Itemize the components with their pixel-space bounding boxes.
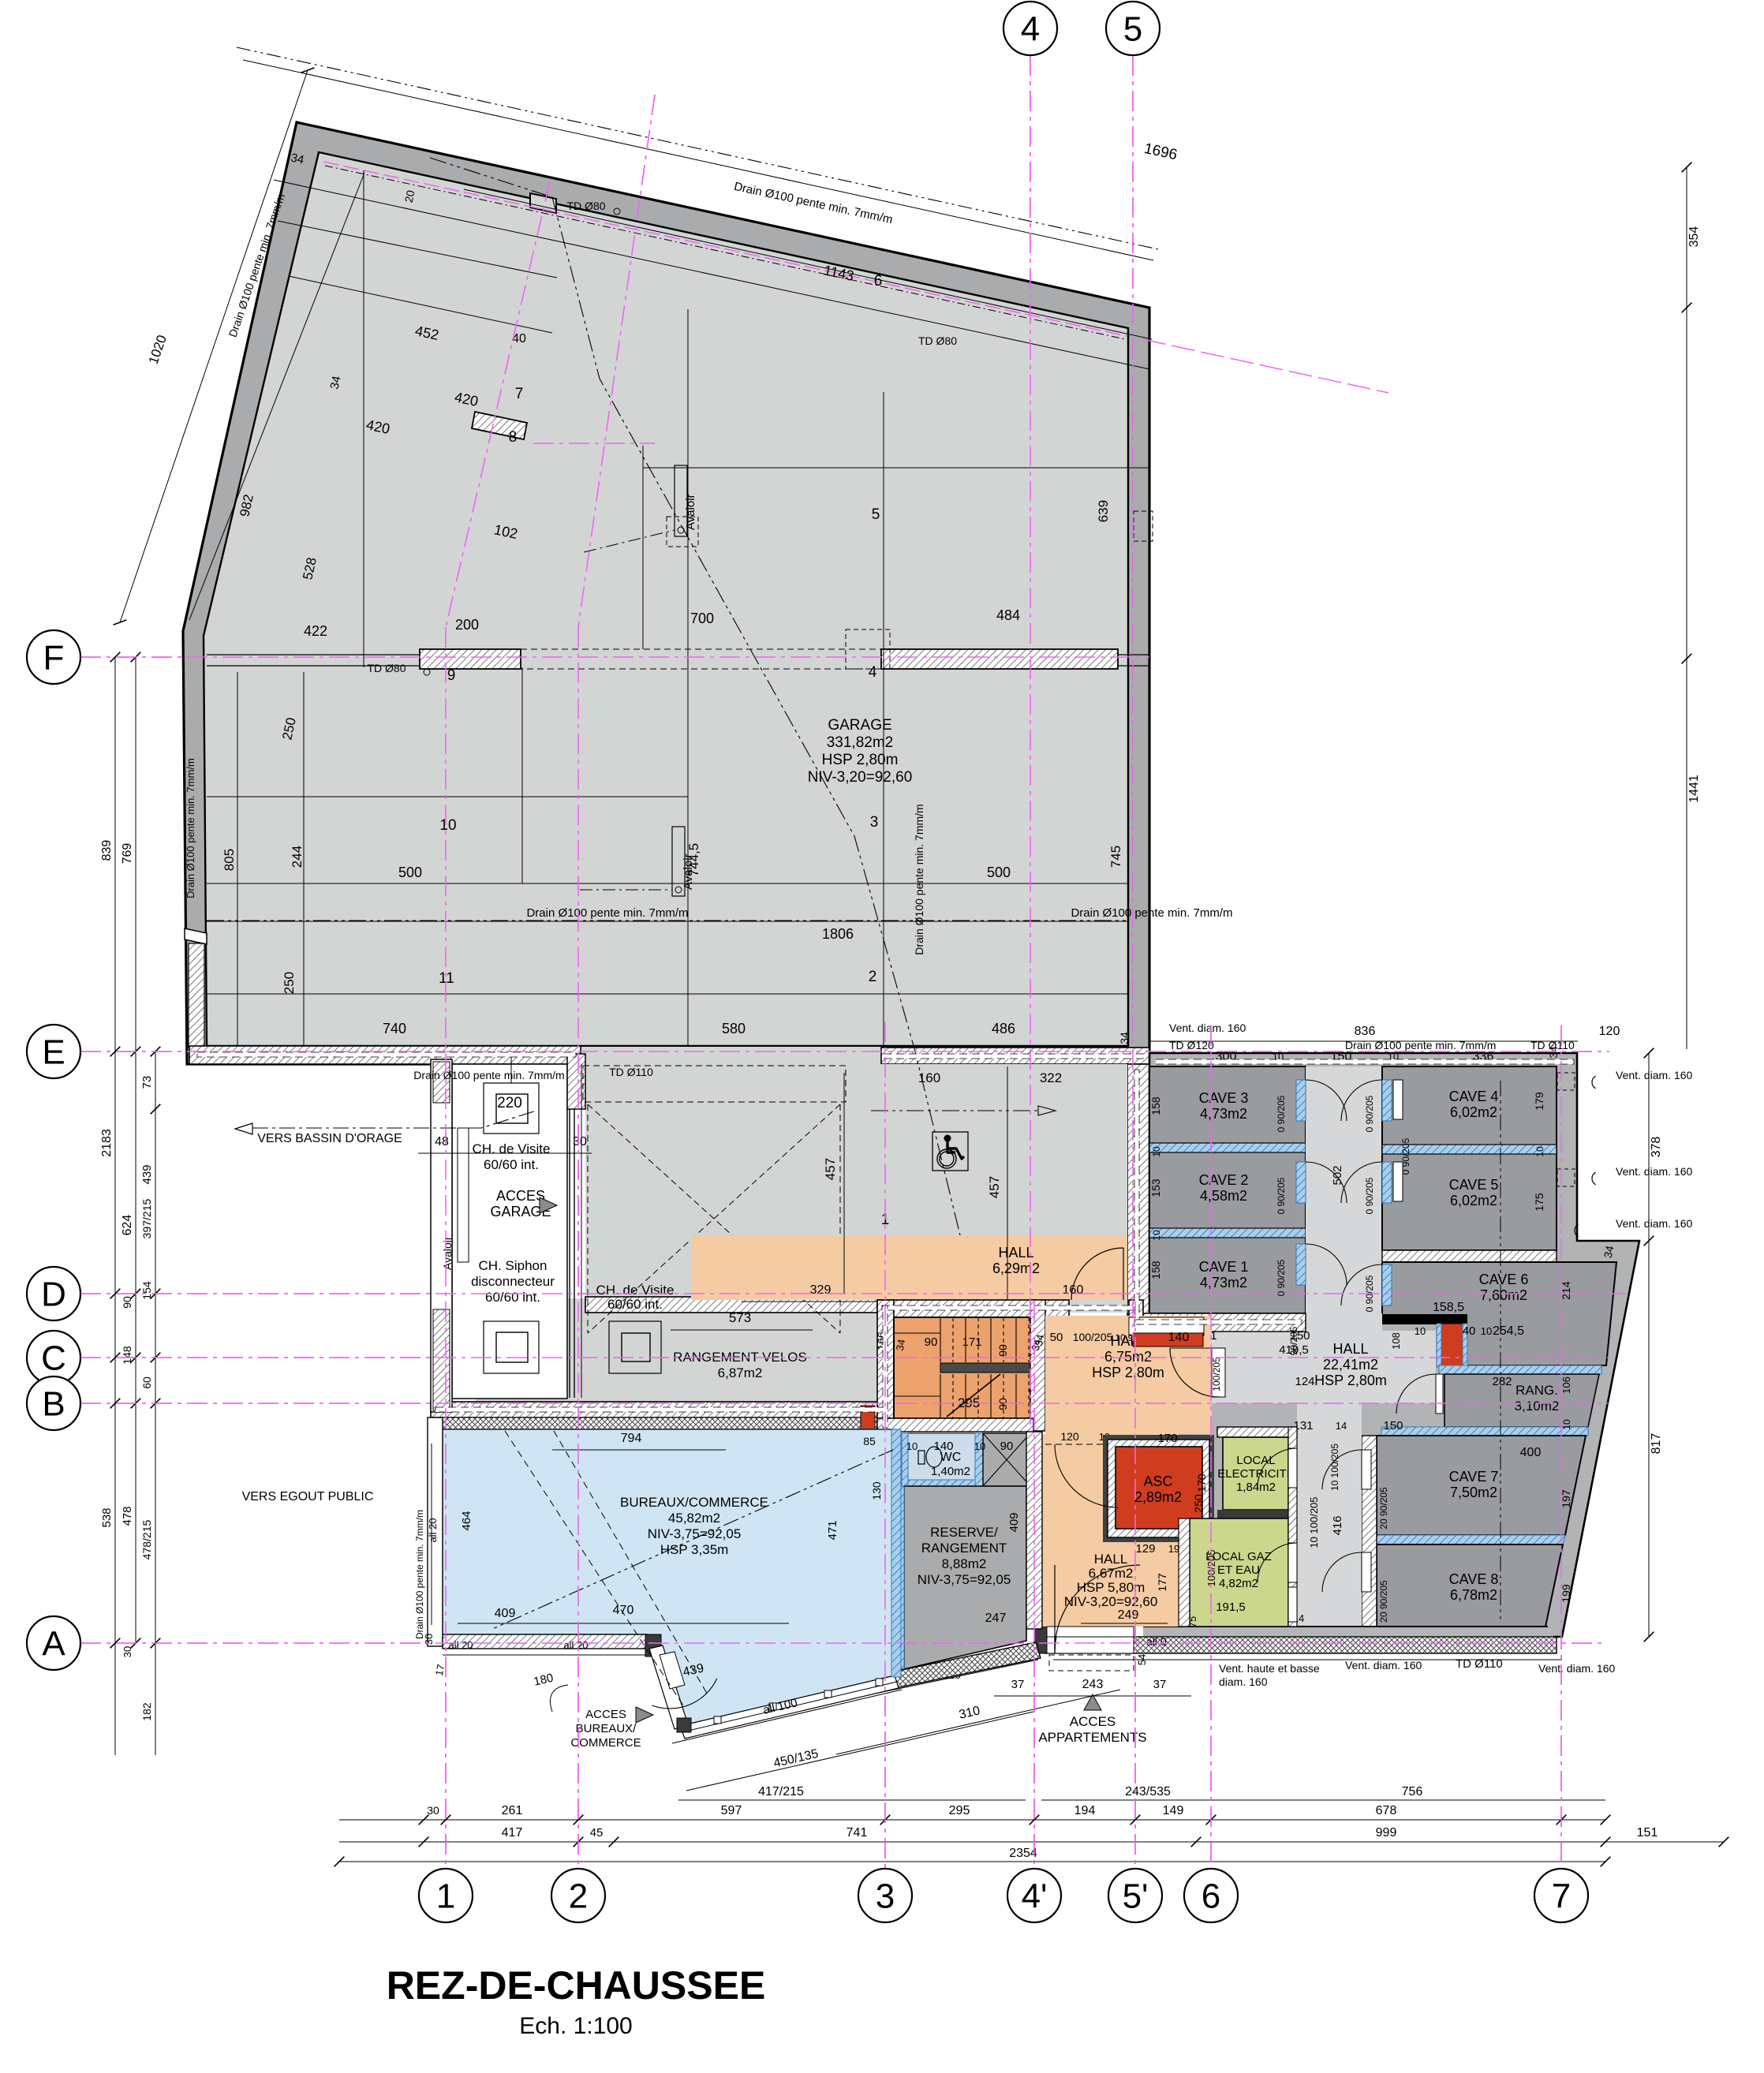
svg-text:60/60 int.: 60/60 int.	[484, 1157, 539, 1172]
svg-text:457: 457	[987, 1176, 1002, 1198]
svg-text:220: 220	[497, 1095, 522, 1111]
svg-text:37: 37	[1011, 1678, 1025, 1691]
svg-text:ASC: ASC	[1143, 1474, 1172, 1489]
svg-text:6: 6	[874, 273, 883, 289]
svg-text:Vent. diam. 160: Vent. diam. 160	[1616, 1165, 1693, 1178]
svg-text:F: F	[43, 638, 65, 677]
svg-text:158: 158	[1149, 1261, 1162, 1279]
svg-text:50: 50	[1050, 1331, 1063, 1344]
svg-text:CAVE 1: CAVE 1	[1199, 1259, 1249, 1275]
svg-text:573: 573	[729, 1310, 751, 1325]
svg-text:2,89m2: 2,89m2	[1134, 1489, 1182, 1505]
svg-text:TD Ø110: TD Ø110	[1456, 1657, 1503, 1671]
svg-text:TD Ø120: TD Ø120	[1169, 1039, 1214, 1051]
svg-text:CH. de Visite: CH. de Visite	[596, 1283, 675, 1298]
svg-text:7,50m2: 7,50m2	[1450, 1485, 1497, 1500]
svg-text:0 90/205: 0 90/205	[1400, 1137, 1411, 1175]
svg-text:329: 329	[810, 1283, 832, 1297]
svg-text:769: 769	[121, 843, 134, 865]
svg-text:130: 130	[870, 1481, 883, 1500]
svg-text:740: 740	[383, 1021, 406, 1036]
svg-text:4,82m2: 4,82m2	[1219, 1577, 1258, 1590]
svg-text:331,82m2: 331,82m2	[827, 734, 894, 751]
svg-text:486: 486	[992, 1021, 1015, 1036]
svg-text:TD Ø110: TD Ø110	[609, 1066, 653, 1078]
svg-text:all 20: all 20	[563, 1639, 588, 1651]
svg-text:90/205: 90/205	[1288, 1326, 1299, 1355]
svg-text:409: 409	[495, 1607, 516, 1620]
svg-text:744,5: 744,5	[686, 843, 701, 877]
svg-text:836: 836	[1355, 1025, 1376, 1038]
svg-text:0 90/205: 0 90/205	[1276, 1095, 1287, 1132]
svg-text:60/60 int.: 60/60 int.	[485, 1290, 540, 1305]
svg-text:120: 120	[1599, 1025, 1620, 1038]
svg-text:HSP 2,80m: HSP 2,80m	[822, 752, 899, 768]
svg-text:194: 194	[1074, 1804, 1096, 1817]
svg-text:8,88m2: 8,88m2	[942, 1556, 987, 1571]
svg-text:6,78m2: 6,78m2	[1450, 1587, 1497, 1603]
svg-text:6,29m2: 6,29m2	[992, 1261, 1040, 1276]
svg-text:171: 171	[962, 1335, 981, 1349]
svg-text:90: 90	[121, 1296, 133, 1309]
svg-text:106: 106	[1560, 1376, 1572, 1394]
svg-text:60/60 int.: 60/60 int.	[607, 1297, 663, 1312]
svg-text:Vent. haute et basse: Vent. haute et basse	[1219, 1662, 1320, 1675]
svg-text:250: 250	[1192, 1494, 1205, 1513]
svg-text:700: 700	[690, 611, 714, 626]
svg-text:APPARTEMENTS: APPARTEMENTS	[1038, 1730, 1146, 1745]
svg-text:322: 322	[1040, 1070, 1062, 1085]
svg-text:124: 124	[1295, 1375, 1314, 1388]
svg-text:45: 45	[590, 1826, 604, 1840]
svg-text:6: 6	[1202, 1877, 1220, 1915]
svg-text:417/215: 417/215	[758, 1785, 804, 1798]
svg-text:470: 470	[613, 1604, 634, 1617]
svg-text:6,67m2: 6,67m2	[1089, 1566, 1134, 1581]
svg-text:NIV-3,75=92,05: NIV-3,75=92,05	[648, 1526, 742, 1541]
svg-text:30: 30	[427, 1804, 439, 1817]
svg-text:Drain Ø100 pente min. 7mm/m: Drain Ø100 pente min. 7mm/m	[185, 758, 196, 898]
svg-text:741: 741	[846, 1826, 868, 1840]
svg-text:1,40m2: 1,40m2	[931, 1465, 970, 1478]
svg-text:90: 90	[925, 1335, 938, 1349]
svg-text:5': 5'	[1123, 1877, 1149, 1915]
svg-text:756: 756	[1402, 1785, 1423, 1798]
svg-text:CAVE 2: CAVE 2	[1199, 1172, 1249, 1188]
svg-text:TD Ø80: TD Ø80	[918, 334, 957, 347]
svg-text:805: 805	[222, 849, 237, 871]
svg-text:6,75m2: 6,75m2	[1104, 1349, 1152, 1365]
svg-text:200: 200	[455, 617, 479, 633]
svg-text:817: 817	[1650, 1433, 1663, 1455]
svg-text:624: 624	[121, 1215, 134, 1236]
svg-text:CH. de Visite: CH. de Visite	[473, 1141, 551, 1156]
svg-text:151: 151	[1637, 1826, 1658, 1840]
svg-text:678: 678	[1376, 1804, 1397, 1817]
svg-text:3: 3	[870, 814, 879, 831]
svg-text:250: 250	[282, 972, 297, 994]
svg-text:4: 4	[1021, 9, 1040, 48]
svg-text:90: 90	[996, 1344, 1009, 1357]
svg-text:LOCAL: LOCAL	[1236, 1454, 1275, 1467]
svg-text:34: 34	[1118, 1032, 1131, 1044]
svg-text:8: 8	[509, 429, 518, 446]
svg-text:40: 40	[1463, 1324, 1476, 1338]
svg-text:150: 150	[1383, 1419, 1403, 1432]
svg-text:TD Ø80: TD Ø80	[566, 200, 605, 212]
svg-text:22,41m2: 22,41m2	[1323, 1357, 1378, 1373]
svg-text:295: 295	[949, 1804, 970, 1817]
svg-text:48: 48	[435, 1135, 449, 1149]
svg-text:CAVE 5: CAVE 5	[1449, 1177, 1499, 1193]
svg-text:0 90/205: 0 90/205	[1364, 1095, 1375, 1132]
svg-text:10: 10	[1534, 1146, 1545, 1157]
svg-text:NIV-3,20=92,60: NIV-3,20=92,60	[1064, 1594, 1158, 1609]
svg-text:839: 839	[100, 840, 114, 861]
svg-text:254,5: 254,5	[1493, 1324, 1524, 1338]
svg-text:Vent. diam. 160: Vent. diam. 160	[1538, 1662, 1616, 1675]
svg-text:HSP 2,80m: HSP 2,80m	[1092, 1365, 1164, 1380]
svg-text:CAVE 4: CAVE 4	[1449, 1089, 1499, 1104]
svg-text:60: 60	[140, 1376, 153, 1389]
svg-text:999: 999	[1376, 1826, 1397, 1840]
svg-text:Drain Ø100 pente min. 7mm/m: Drain Ø100 pente min. 7mm/m	[913, 804, 925, 954]
svg-text:9: 9	[447, 667, 456, 684]
svg-text:5: 5	[1123, 9, 1142, 48]
svg-text:464: 464	[460, 1511, 473, 1530]
svg-text:disconnecteur: disconnecteur	[471, 1274, 555, 1289]
svg-text:4: 4	[869, 664, 877, 681]
svg-text:10: 10	[974, 1440, 985, 1452]
svg-text:Drain Ø100 pente min. 7mm/m: Drain Ø100 pente min. 7mm/m	[1071, 906, 1232, 920]
svg-text:30: 30	[573, 1135, 587, 1149]
svg-text:34: 34	[290, 151, 305, 167]
svg-text:1,84m2: 1,84m2	[1236, 1481, 1276, 1494]
svg-text:500: 500	[398, 865, 422, 880]
svg-text:Avaloir: Avaloir	[684, 494, 697, 530]
svg-text:10: 10	[439, 817, 456, 834]
svg-text:HALL: HALL	[1332, 1341, 1368, 1357]
svg-text:Drain Ø100 pente min. 7mm/m: Drain Ø100 pente min. 7mm/m	[413, 1069, 564, 1081]
svg-text:149: 149	[1163, 1804, 1184, 1817]
svg-text:CH. Siphon: CH. Siphon	[479, 1258, 548, 1273]
svg-text:NIV-3,20=92,60: NIV-3,20=92,60	[808, 769, 913, 786]
svg-text:BUREAUX/COMMERCE: BUREAUX/COMMERCE	[620, 1495, 768, 1510]
svg-text:2354: 2354	[1009, 1847, 1037, 1860]
svg-text:261: 261	[502, 1804, 523, 1817]
svg-text:7: 7	[1552, 1877, 1571, 1915]
svg-text:484: 484	[996, 607, 1020, 623]
svg-text:all 0: all 0	[1146, 1635, 1167, 1648]
svg-text:10: 10	[1151, 1230, 1162, 1241]
svg-text:54: 54	[1136, 1654, 1148, 1665]
svg-text:422: 422	[304, 623, 327, 639]
svg-text:HALL: HALL	[998, 1245, 1033, 1261]
svg-text:ACCES: ACCES	[585, 1708, 626, 1721]
svg-text:4,58m2: 4,58m2	[1200, 1188, 1247, 1204]
svg-text:4,73m2: 4,73m2	[1200, 1106, 1247, 1122]
svg-text:HALL: HALL	[1094, 1552, 1128, 1567]
svg-text:170: 170	[1195, 1474, 1208, 1492]
svg-text:108: 108	[1390, 1332, 1402, 1350]
svg-text:580: 580	[722, 1021, 746, 1036]
svg-text:478: 478	[121, 1506, 134, 1526]
svg-text:745: 745	[1108, 846, 1123, 868]
svg-text:10: 10	[1415, 1325, 1426, 1337]
svg-text:191,5: 191,5	[1216, 1601, 1246, 1614]
svg-text:B: B	[42, 1384, 65, 1423]
svg-text:10 100/205: 10 100/205	[1308, 1496, 1320, 1548]
svg-text:7: 7	[515, 386, 524, 402]
svg-text:6,02m2: 6,02m2	[1450, 1193, 1497, 1208]
svg-text:397/215: 397/215	[140, 1198, 153, 1238]
svg-text:457: 457	[823, 1158, 838, 1180]
svg-text:Vent. diam. 160: Vent. diam. 160	[1345, 1659, 1422, 1671]
svg-text:400: 400	[1520, 1446, 1542, 1459]
svg-text:0 90/205: 0 90/205	[1276, 1259, 1287, 1296]
svg-text:diam. 160: diam. 160	[1219, 1675, 1268, 1688]
svg-text:1441: 1441	[1687, 775, 1701, 803]
svg-text:154: 154	[140, 1281, 153, 1300]
svg-text:10: 10	[1561, 1419, 1572, 1430]
svg-text:794: 794	[621, 1432, 642, 1445]
svg-text:10: 10	[1115, 1332, 1126, 1343]
svg-text:639: 639	[1096, 500, 1111, 522]
svg-text:158,5: 158,5	[1433, 1301, 1464, 1314]
svg-text:378: 378	[1650, 1137, 1663, 1158]
svg-text:182: 182	[140, 1702, 153, 1721]
svg-text:3: 3	[876, 1877, 895, 1915]
svg-text:439: 439	[140, 1164, 154, 1184]
svg-text:10: 10	[1481, 1325, 1492, 1337]
svg-text:Drain Ø100 pente min. 7mm/m: Drain Ø100 pente min. 7mm/m	[1345, 1039, 1496, 1051]
svg-text:4,73m2: 4,73m2	[1200, 1275, 1247, 1290]
svg-text:HSP 2,80m: HSP 2,80m	[1314, 1373, 1387, 1388]
svg-text:VERS BASSIN D'ORAGE: VERS BASSIN D'ORAGE	[257, 1132, 402, 1145]
svg-text:478/215: 478/215	[140, 1519, 153, 1559]
svg-text:BUREAUX/: BUREAUX/	[576, 1722, 637, 1735]
svg-text:90: 90	[996, 1398, 1009, 1410]
svg-text:Avaloir: Avaloir	[441, 1236, 454, 1270]
svg-text:A: A	[42, 1624, 65, 1663]
svg-text:Ech. 1:100: Ech. 1:100	[519, 2013, 632, 2039]
svg-text:177: 177	[1156, 1573, 1168, 1592]
svg-text:243/535: 243/535	[1125, 1785, 1171, 1798]
svg-text:0 90/205: 0 90/205	[1276, 1177, 1287, 1214]
svg-text:REZ-DE-CHAUSSEE: REZ-DE-CHAUSSEE	[387, 1963, 766, 2008]
svg-text:Vent. diam. 160: Vent. diam. 160	[1169, 1022, 1246, 1034]
svg-text:37: 37	[1153, 1678, 1167, 1691]
svg-text:244: 244	[290, 846, 305, 868]
svg-text:30: 30	[121, 1646, 133, 1657]
svg-text:129: 129	[1135, 1542, 1155, 1556]
svg-text:153: 153	[1149, 1178, 1162, 1197]
svg-text:140: 140	[1168, 1331, 1190, 1344]
svg-text:D: D	[41, 1275, 66, 1313]
svg-text:TD Ø110: TD Ø110	[1530, 1039, 1575, 1051]
svg-text:6,02m2: 6,02m2	[1450, 1104, 1497, 1120]
svg-text:45,82m2: 45,82m2	[668, 1511, 720, 1526]
svg-text:417: 417	[502, 1826, 523, 1840]
svg-text:160: 160	[918, 1070, 940, 1085]
svg-text:100/205: 100/205	[1211, 1357, 1222, 1391]
svg-text:RANG.: RANG.	[1515, 1383, 1558, 1398]
svg-text:3,10m2: 3,10m2	[1515, 1399, 1560, 1414]
svg-text:RESERVE/: RESERVE/	[930, 1525, 998, 1540]
svg-text:CAVE 8: CAVE 8	[1449, 1571, 1499, 1587]
svg-text:14: 14	[1336, 1420, 1347, 1432]
svg-text:2: 2	[569, 1877, 588, 1915]
svg-text:ACCES: ACCES	[1070, 1714, 1116, 1729]
svg-text:19: 19	[1168, 1543, 1179, 1555]
svg-text:597: 597	[721, 1804, 742, 1817]
svg-text:7,60m2: 7,60m2	[1480, 1287, 1527, 1303]
svg-text:170: 170	[1157, 1432, 1177, 1445]
svg-text:10: 10	[1151, 1146, 1162, 1157]
svg-text:282: 282	[1492, 1375, 1512, 1388]
svg-text:TD Ø80: TD Ø80	[367, 662, 405, 674]
svg-text:1806: 1806	[822, 926, 854, 942]
svg-text:179: 179	[1533, 1092, 1545, 1111]
svg-text:2183: 2183	[100, 1129, 114, 1157]
svg-text:502: 502	[1331, 1165, 1344, 1185]
svg-text:140: 140	[933, 1440, 953, 1453]
svg-text:120: 120	[1060, 1430, 1079, 1443]
svg-text:GARAGE: GARAGE	[828, 717, 891, 734]
svg-text:Vent. diam. 160: Vent. diam. 160	[1616, 1217, 1693, 1230]
svg-text:20 90/205: 20 90/205	[1378, 1487, 1389, 1530]
svg-text:C: C	[41, 1339, 66, 1377]
svg-text:CAVE 6: CAVE 6	[1479, 1272, 1529, 1287]
svg-text:Drain Ø100 pente min. 7mm/m: Drain Ø100 pente min. 7mm/m	[526, 906, 688, 920]
svg-text:500: 500	[987, 865, 1011, 880]
svg-text:20 90/205: 20 90/205	[1378, 1580, 1389, 1623]
svg-text:ACCES: ACCES	[496, 1188, 545, 1204]
svg-text:1: 1	[436, 1877, 455, 1915]
svg-text:11: 11	[439, 970, 454, 987]
svg-text:175: 175	[1533, 1193, 1545, 1212]
svg-text:17: 17	[433, 1663, 447, 1676]
svg-text:Drain Ø100 pente min. 7mm/m: Drain Ø100 pente min. 7mm/m	[414, 1510, 425, 1639]
svg-text:90: 90	[1000, 1440, 1014, 1453]
svg-text:85: 85	[863, 1435, 876, 1447]
svg-text:243: 243	[1082, 1678, 1104, 1691]
svg-text:ET EAU: ET EAU	[1217, 1563, 1260, 1577]
svg-text:HSP 3,35m: HSP 3,35m	[660, 1542, 729, 1557]
svg-text:34: 34	[328, 375, 344, 390]
svg-text:2: 2	[869, 969, 877, 985]
svg-text:247: 247	[985, 1612, 1007, 1625]
svg-text:VERS EGOUT PUBLIC: VERS EGOUT PUBLIC	[242, 1490, 374, 1503]
svg-text:all 20: all 20	[427, 1518, 439, 1542]
svg-text:0 90/205: 0 90/205	[1364, 1177, 1375, 1214]
svg-text:Vent. diam. 160: Vent. diam. 160	[1616, 1069, 1693, 1081]
svg-text:409: 409	[1007, 1512, 1021, 1532]
svg-text:10: 10	[906, 1440, 918, 1452]
svg-text:5: 5	[872, 506, 880, 523]
svg-text:4': 4'	[1022, 1877, 1048, 1915]
svg-text:148: 148	[121, 1346, 133, 1365]
svg-text:73: 73	[140, 1076, 154, 1089]
svg-text:538: 538	[100, 1507, 114, 1527]
svg-text:158: 158	[1149, 1096, 1162, 1115]
svg-text:100/205: 100/205	[1073, 1331, 1113, 1343]
svg-text:E: E	[42, 1033, 65, 1071]
svg-text:354: 354	[1687, 226, 1701, 248]
svg-text:COMMERCE: COMMERCE	[570, 1736, 641, 1750]
svg-text:416: 416	[1331, 1515, 1344, 1535]
svg-text:all 20: all 20	[448, 1639, 473, 1651]
svg-text:CAVE 7: CAVE 7	[1449, 1469, 1499, 1485]
svg-text:NIV-3,75=92,05: NIV-3,75=92,05	[918, 1572, 1011, 1587]
svg-text:34: 34	[894, 1338, 908, 1351]
svg-text:6,87m2: 6,87m2	[718, 1365, 763, 1380]
svg-text:CAVE 3: CAVE 3	[1199, 1090, 1249, 1106]
svg-text:10 100/205: 10 100/205	[1329, 1444, 1340, 1491]
svg-text:471: 471	[826, 1520, 839, 1540]
svg-text:ELECTRICITE: ELECTRICITE	[1217, 1467, 1295, 1481]
svg-text:RANGEMENT: RANGEMENT	[921, 1541, 1007, 1556]
